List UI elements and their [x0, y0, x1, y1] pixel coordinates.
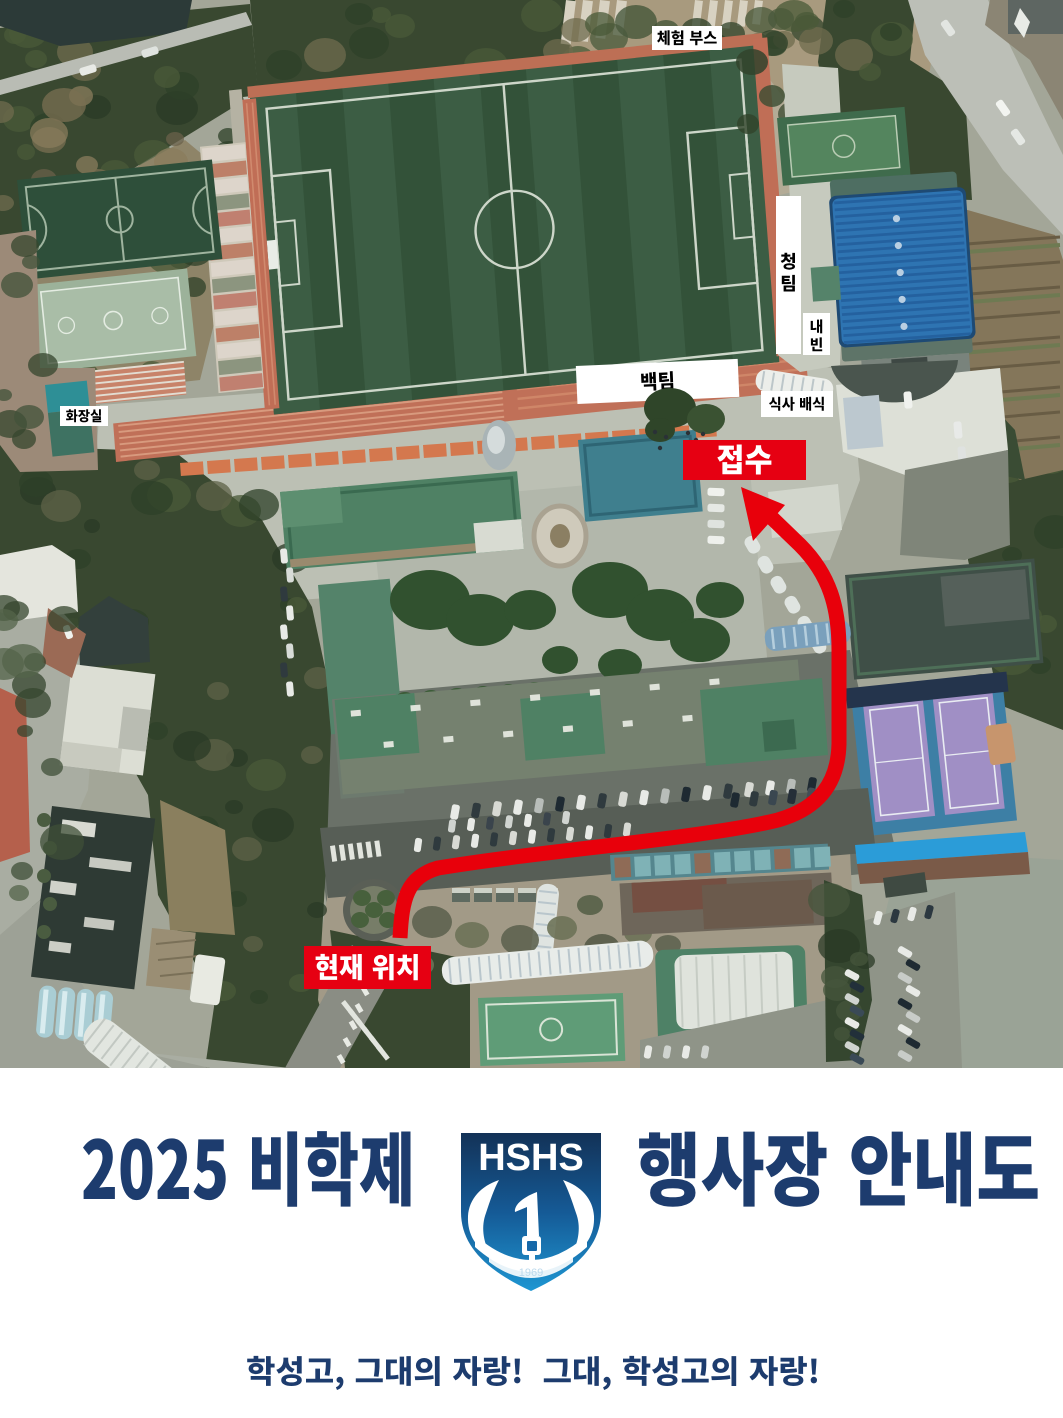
svg-text:1969: 1969 — [519, 1267, 543, 1279]
svg-text:HSHS: HSHS — [478, 1137, 584, 1179]
